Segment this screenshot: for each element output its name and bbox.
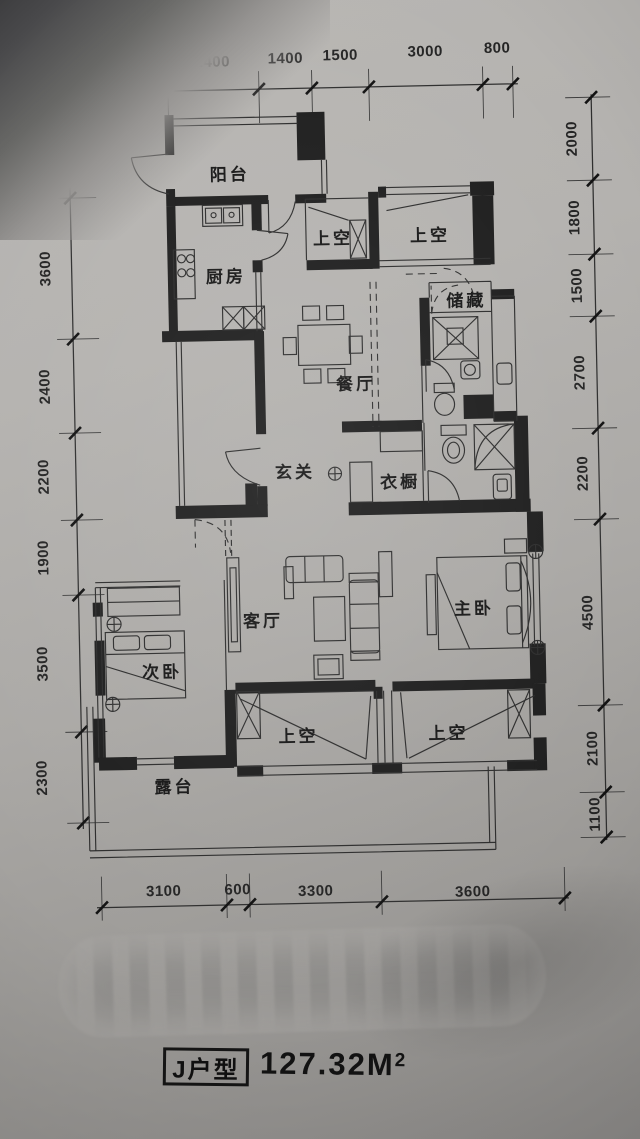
area-exponent: 2 — [395, 1050, 406, 1071]
area-value: 127.32M — [260, 1046, 395, 1083]
title-row: J户型 127.32M2 — [0, 0, 640, 1139]
unit-type-badge: J户型 — [163, 1047, 249, 1086]
unit-area-text: 127.32M2 — [260, 1046, 406, 1084]
floorplan-photo: 阳台 厨房 上空 上空 储藏 餐厅 玄关 衣橱 客厅 主卧 次卧 上空 上空 露… — [0, 0, 640, 1139]
